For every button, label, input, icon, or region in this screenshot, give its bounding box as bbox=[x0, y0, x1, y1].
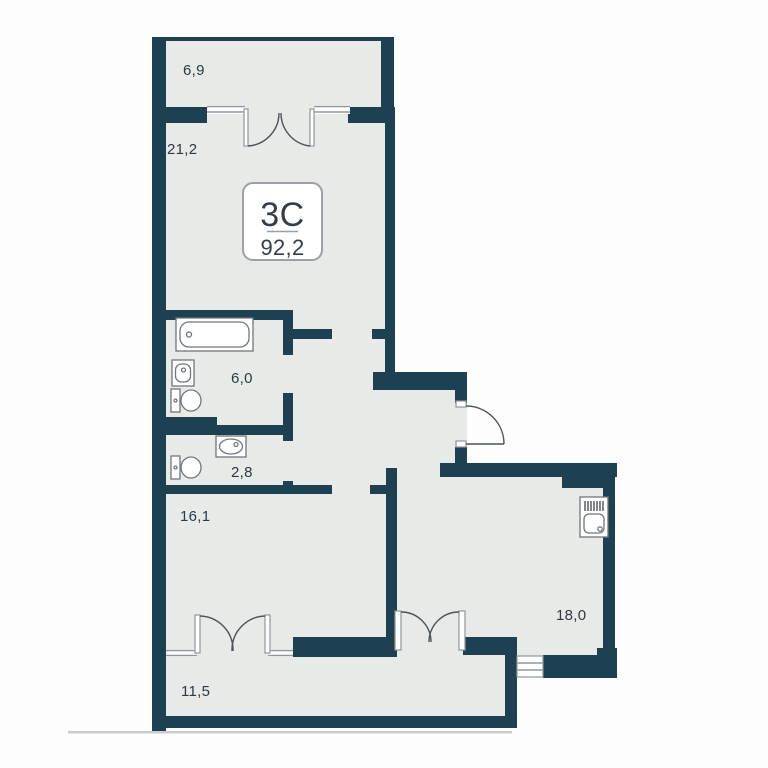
toilet-icon bbox=[171, 389, 201, 412]
sink-basin bbox=[176, 364, 191, 382]
room-label-wc: 2,8 bbox=[231, 464, 253, 481]
wall-corridor-top bbox=[373, 372, 467, 390]
wall bbox=[562, 477, 605, 488]
door-leaf bbox=[310, 109, 314, 146]
toilet-bowl bbox=[181, 457, 201, 478]
door-leaf bbox=[265, 615, 270, 653]
toilet-icon bbox=[171, 456, 201, 479]
badge-area-label: 92,2 bbox=[260, 235, 304, 260]
window-kitchen-bottom bbox=[517, 656, 543, 677]
wall-bath-wc-divider bbox=[152, 417, 217, 435]
neighbor-balcony-line bbox=[68, 731, 512, 734]
sink-tap bbox=[234, 443, 238, 447]
wall-bedroom-top bbox=[152, 485, 332, 494]
wall bbox=[288, 329, 332, 339]
room-label-balcony-top: 6,9 bbox=[183, 62, 205, 79]
wall-living-right bbox=[385, 107, 395, 390]
wall bbox=[217, 425, 293, 435]
door-frame-mark bbox=[456, 441, 466, 447]
door-leaf bbox=[459, 611, 465, 650]
toilet-bowl bbox=[181, 390, 201, 411]
floor-plan: 6,9 21,2 6,0 2,8 16,1 11,5 18,0 3С 92,2 bbox=[0, 0, 768, 768]
wall-balcony-bottom-right bbox=[505, 637, 517, 728]
bathtub-icon bbox=[176, 318, 253, 351]
toilet-button bbox=[174, 399, 177, 402]
kitchen-sink-drain bbox=[598, 527, 602, 531]
wall-kitchen-top bbox=[440, 463, 617, 477]
wall-left bbox=[152, 37, 166, 731]
wall-bedroom-bottom bbox=[293, 637, 397, 657]
wall-balcony-top bbox=[152, 37, 394, 41]
wall bbox=[152, 107, 207, 123]
door-leaf bbox=[195, 615, 200, 653]
sink-icon bbox=[172, 360, 194, 386]
kitchen-sink-drainboard bbox=[585, 501, 603, 511]
bathtub-drain bbox=[187, 332, 192, 337]
door-leaf bbox=[244, 109, 248, 146]
wall-entry-jamb-bottom bbox=[455, 447, 467, 464]
floor-plan-page: 6,9 21,2 6,0 2,8 16,1 11,5 18,0 3С 92,2 bbox=[0, 0, 768, 768]
wall-balcony-bottom-outer bbox=[152, 716, 517, 728]
wall bbox=[372, 329, 385, 339]
room-label-bedroom: 16,1 bbox=[180, 508, 210, 525]
door-frame-mark bbox=[456, 401, 466, 407]
kitchen-sink-icon bbox=[580, 497, 608, 537]
door-leaf bbox=[395, 611, 401, 650]
room-label-bathroom: 6,0 bbox=[231, 370, 253, 387]
window-frame bbox=[517, 656, 543, 677]
badge-type-label: 3С bbox=[260, 196, 304, 234]
door-swing-arc bbox=[466, 406, 504, 444]
sink-tap bbox=[182, 368, 186, 372]
wall-kitchen-bottom bbox=[543, 655, 603, 678]
room-label-kitchen-living: 18,0 bbox=[556, 607, 586, 624]
toilet-button bbox=[174, 466, 177, 469]
room-label-balcony-bottom: 11,5 bbox=[181, 683, 210, 700]
plan-badge: 3С 92,2 bbox=[243, 183, 322, 260]
sink-icon bbox=[216, 436, 246, 457]
floor-balcony-bottom bbox=[158, 650, 512, 722]
room-label-living-room: 21,2 bbox=[167, 141, 197, 158]
sink-basin bbox=[220, 439, 243, 454]
